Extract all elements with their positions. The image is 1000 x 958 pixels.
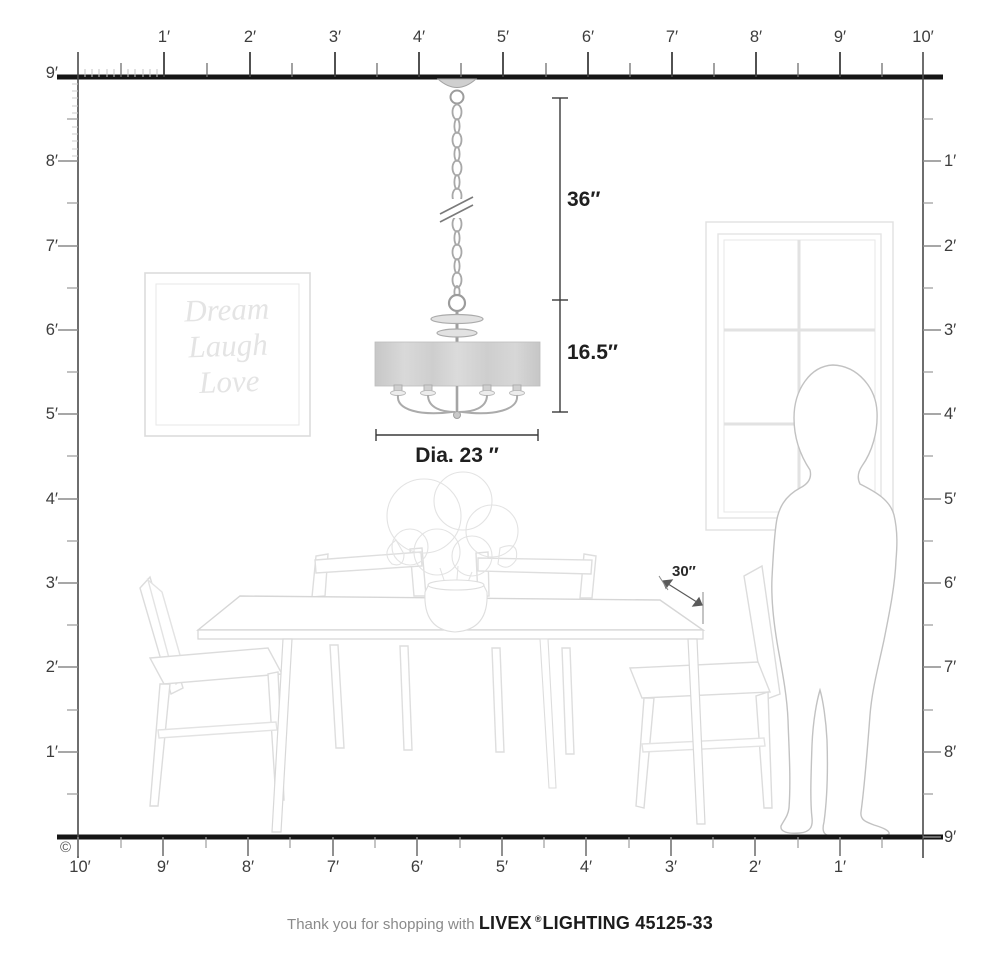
candle-arms (391, 385, 525, 419)
top-ruler-label-7ft: 7′ (666, 28, 678, 46)
right-ruler-label-9ft: 9′ (944, 828, 956, 846)
right-ruler-label-3ft: 3′ (944, 321, 956, 339)
person-silhouette (772, 365, 897, 837)
room-scene-graphic (0, 0, 1000, 958)
top-ruler-label-9ft: 9′ (834, 28, 846, 46)
fixture-height-label: 16.5″ (567, 341, 618, 365)
bottom-ruler-label-7ft: 7′ (327, 858, 339, 876)
copyright-mark: © (60, 839, 71, 856)
left-ruler-label-2ft: 2′ (30, 658, 58, 676)
bottom-ruler-label-10ft: 10′ (69, 858, 90, 876)
product-dimension-diagram: Dream Laugh Love 36″ 16.5″ Dia. 23 ″ 30″… (0, 0, 1000, 958)
right-ruler-label-4ft: 4′ (944, 405, 956, 423)
footer-model: LIGHTING 45125-33 (542, 913, 712, 933)
bottom-ruler-label-8ft: 8′ (242, 858, 254, 876)
right-ruler-label-5ft: 5′ (944, 490, 956, 508)
footer-brand: LIVEX (479, 913, 532, 933)
dining-chairs-back (312, 548, 596, 754)
bottom-ruler-label-9ft: 9′ (157, 858, 169, 876)
registered-trademark-icon: ® (535, 914, 542, 924)
bottom-ruler-label-3ft: 3′ (665, 858, 677, 876)
table-depth-label: 30″ (672, 563, 696, 580)
wall-art-text: Dream Laugh Love (145, 289, 311, 403)
diameter-label: Dia. 23 ″ (377, 444, 537, 468)
left-ruler-label-5ft: 5′ (30, 405, 58, 423)
left-ruler-label-7ft: 7′ (30, 237, 58, 255)
left-ruler-label-1ft: 1′ (30, 743, 58, 761)
footer-text: Thank you for shopping with LIVEX®LIGHTI… (0, 913, 1000, 934)
chain-break-mark (436, 197, 478, 222)
left-ruler-label-6ft: 6′ (30, 321, 58, 339)
right-ruler-label-7ft: 7′ (944, 658, 956, 676)
footer-thanks: Thank you for shopping with (287, 916, 475, 933)
top-ruler-label-10ft: 10′ (912, 28, 933, 46)
bottom-ruler-label-2ft: 2′ (749, 858, 761, 876)
top-ruler-ticks (85, 52, 882, 77)
right-ruler-label-6ft: 6′ (944, 574, 956, 592)
left-ruler-label-8ft: 8′ (30, 152, 58, 170)
right-wall-ruler (923, 52, 941, 858)
top-ruler-label-1ft: 1′ (158, 28, 170, 46)
right-ruler-label-1ft: 1′ (944, 152, 956, 170)
drum-shade (375, 342, 540, 386)
wall-art-line-3: Love (148, 361, 311, 403)
right-ruler-label-2ft: 2′ (944, 237, 956, 255)
chandelier (375, 79, 540, 419)
right-ruler-label-8ft: 8′ (944, 743, 956, 761)
left-ruler-label-3ft: 3′ (30, 574, 58, 592)
top-ruler-label-6ft: 6′ (582, 28, 594, 46)
top-ruler-label-8ft: 8′ (750, 28, 762, 46)
top-ruler-label-2ft: 2′ (244, 28, 256, 46)
window (706, 222, 893, 530)
bottom-ruler-ticks (78, 837, 882, 856)
bottom-ruler-label-5ft: 5′ (496, 858, 508, 876)
chain-length-label: 36″ (567, 188, 600, 212)
bottom-ruler-label-1ft: 1′ (834, 858, 846, 876)
left-ruler-label-4ft: 4′ (30, 490, 58, 508)
left-wall-ruler (58, 52, 78, 858)
wall-art-line-1: Dream (145, 289, 308, 331)
bottom-ruler-label-4ft: 4′ (580, 858, 592, 876)
dimension-lines (376, 98, 568, 441)
wall-art-line-2: Laugh (146, 325, 309, 367)
bottom-ruler-label-6ft: 6′ (411, 858, 423, 876)
top-ruler-label-3ft: 3′ (329, 28, 341, 46)
left-ruler-label-9ft: 9′ (30, 64, 58, 82)
top-ruler-label-5ft: 5′ (497, 28, 509, 46)
top-ruler-label-4ft: 4′ (413, 28, 425, 46)
